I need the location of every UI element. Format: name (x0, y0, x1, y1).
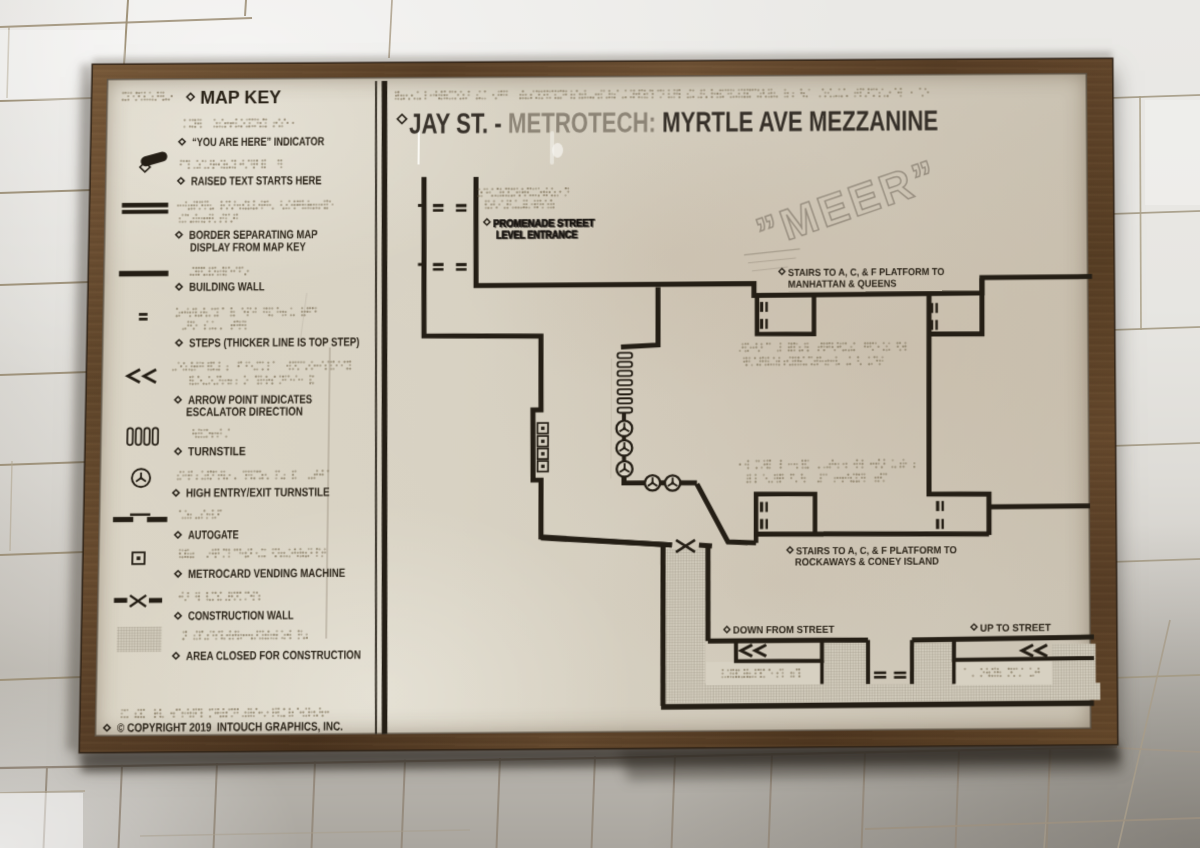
svg-text:DOWN FROM STREET: DOWN FROM STREET (733, 624, 834, 636)
svg-text:UP TO STREET: UP TO STREET (980, 623, 1051, 635)
svg-text:AREA CLOSED FOR CONSTRUCTION: AREA CLOSED FOR CONSTRUCTION (186, 649, 361, 664)
svg-text:”MEER”: ”MEER” (750, 150, 945, 258)
svg-text:© COPYRIGHT 2019 INTOUCH GRAP: © COPYRIGHT 2019 INTOUCH GRAPHICS, INC. (117, 720, 343, 735)
svg-text:HIGH ENTRY/EXIT TURNSTILE: HIGH ENTRY/EXIT TURNSTILE (186, 486, 330, 500)
svg-text:TURNSTILE: TURNSTILE (188, 445, 246, 458)
svg-text:PROMENADE STREET: PROMENADE STREET (493, 218, 595, 230)
svg-text:DISPLAY FROM MAP KEY: DISPLAY FROM MAP KEY (190, 241, 306, 255)
svg-text:METROCARD VENDING MACHINE: METROCARD VENDING MACHINE (188, 567, 345, 582)
svg-text:MAP KEY: MAP KEY (200, 88, 281, 108)
svg-text:JAY ST. - METROTECH: MYRTLE AV: JAY ST. - METROTECH: MYRTLE AVE MEZZANIN… (409, 106, 938, 140)
svg-text:CONSTRUCTION WALL: CONSTRUCTION WALL (188, 609, 294, 623)
svg-text:ESCALATOR DIRECTION: ESCALATOR DIRECTION (186, 405, 303, 419)
svg-text:LEVEL ENTRANCE: LEVEL ENTRANCE (496, 229, 578, 242)
svg-text:MANHATTAN & QUEENS: MANHATTAN & QUEENS (788, 278, 897, 290)
svg-text:AUTOGATE: AUTOGATE (188, 528, 239, 542)
svg-text:ROCKAWAYS & CONEY ISLAND: ROCKAWAYS & CONEY ISLAND (795, 556, 939, 569)
svg-text:“YOU ARE HERE” INDICATOR: “YOU ARE HERE” INDICATOR (192, 135, 325, 149)
svg-text:RAISED TEXT STARTS HERE: RAISED TEXT STARTS HERE (191, 174, 322, 188)
svg-text:BUILDING WALL: BUILDING WALL (189, 280, 265, 294)
svg-text:STAIRS TO A, C, & F PLATFORM T: STAIRS TO A, C, & F PLATFORM TO (788, 267, 945, 280)
svg-text:STEPS (THICKER LINE IS TOP STE: STEPS (THICKER LINE IS TOP STEP) (189, 336, 360, 350)
